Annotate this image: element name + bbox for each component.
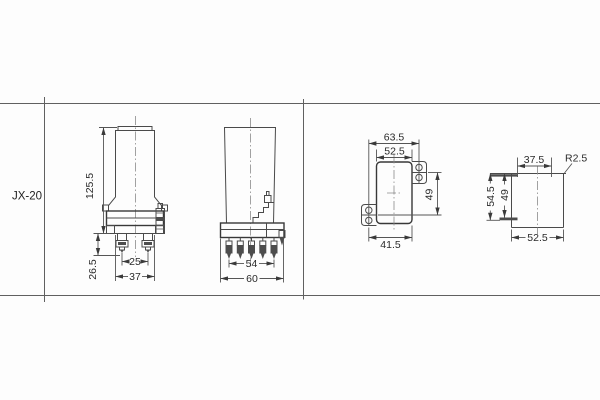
dim-front-width: 37 xyxy=(129,271,141,283)
latch-tip xyxy=(267,192,270,196)
relay-body-front xyxy=(109,131,162,212)
latch-steps xyxy=(253,203,274,224)
relay-spec-sheet: JX-20 xyxy=(0,0,600,400)
dim-drill-overall-height: 54.5 xyxy=(485,186,497,207)
radius-leader-line xyxy=(565,164,573,174)
dim-drill-width: 52.5 xyxy=(527,232,548,244)
relay-top-cap xyxy=(118,127,152,131)
pin xyxy=(226,238,233,260)
dim-side-width: 60 xyxy=(246,273,258,285)
dim-side-pin-span: 54 xyxy=(246,258,258,270)
right-foot xyxy=(156,226,164,234)
panel-cutout-view: 63.5 52.5 49 41.5 xyxy=(362,132,442,252)
dim-front-height: 125.5 xyxy=(84,173,96,199)
front-dimension-lines xyxy=(94,128,155,282)
pin xyxy=(259,238,266,260)
pin xyxy=(248,238,255,260)
bottom-flange-bar xyxy=(500,218,518,221)
left-foot xyxy=(107,226,115,234)
drilling-view: 37.5 R2.5 54.5 49 52.5 xyxy=(485,153,588,245)
dim-cutout-width: 52.5 xyxy=(384,146,405,158)
dim-front-terminal-length: 26.5 xyxy=(87,259,99,280)
side-view: 54 60 xyxy=(221,118,286,285)
model-label: JX-20 xyxy=(12,191,42,203)
dim-front-terminal-spacing: 25 xyxy=(129,256,141,268)
dim-drill-corner-radius: R2.5 xyxy=(565,153,587,165)
terminal-screw-right xyxy=(142,234,154,253)
dim-drill-hole-span-v: 49 xyxy=(499,189,511,201)
dim-cutout-lower-width: 41.5 xyxy=(380,239,401,251)
dim-cutout-hole-span-h: 63.5 xyxy=(384,132,405,144)
base-side-screw xyxy=(156,204,165,234)
pin xyxy=(271,238,278,260)
front-view: 125.5 26.5 25 37 xyxy=(84,116,168,283)
latch-knob xyxy=(265,196,272,203)
top-flange-bar xyxy=(490,174,518,176)
dimension-drawing-canvas: JX-20 xyxy=(0,0,600,400)
dim-cutout-hole-span-v: 49 xyxy=(424,189,436,201)
dim-drill-hole-span-h: 37.5 xyxy=(524,154,545,166)
terminal-screw-left xyxy=(116,234,128,253)
pin xyxy=(237,238,244,260)
relay-body-side xyxy=(225,128,276,224)
connector-pins xyxy=(226,238,278,260)
base-plate-side xyxy=(221,223,285,238)
